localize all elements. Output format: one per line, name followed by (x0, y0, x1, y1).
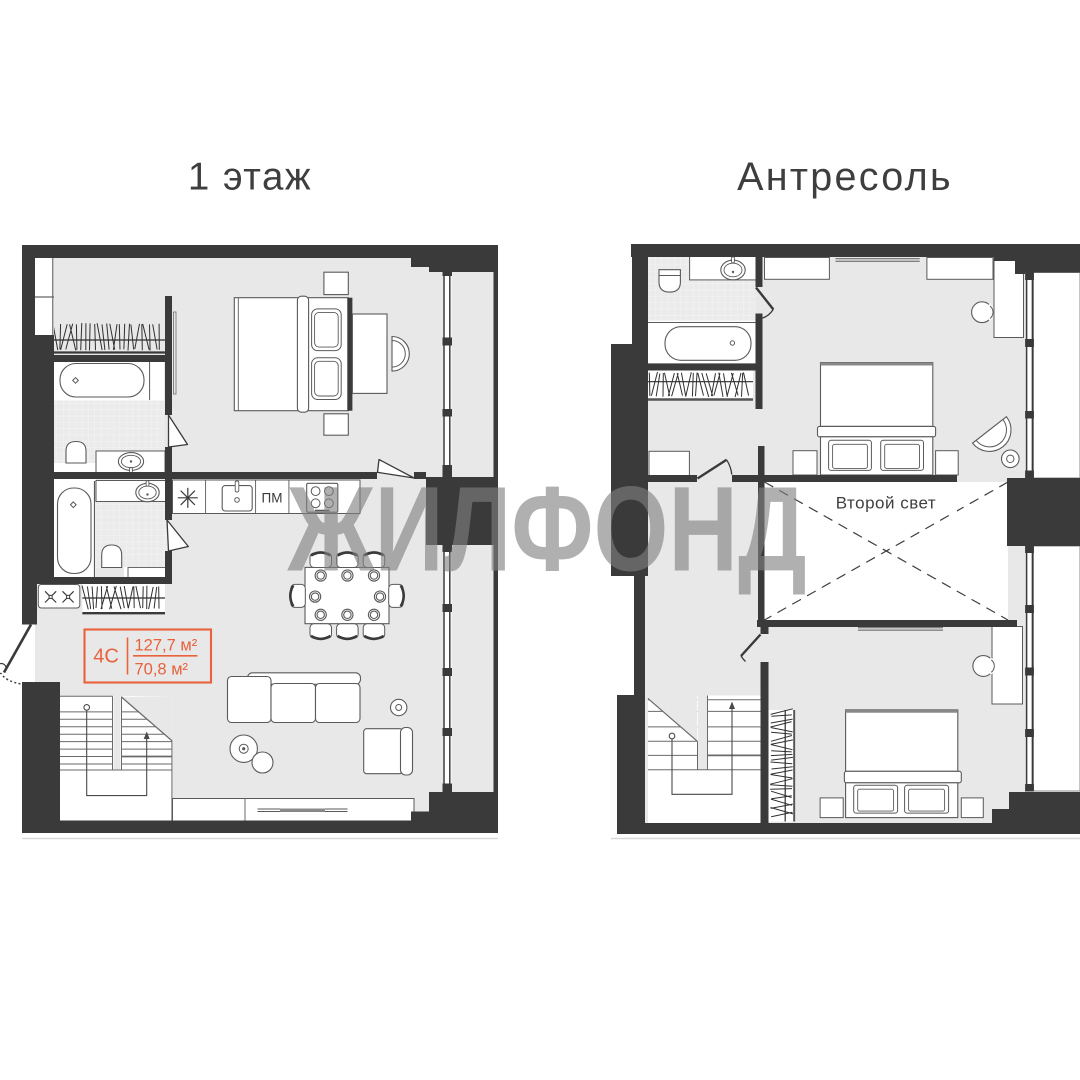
svg-text:4С: 4С (93, 646, 119, 668)
svg-text:70,8 м²: 70,8 м² (135, 661, 189, 679)
svg-text:ПМ: ПМ (262, 490, 283, 505)
svg-text:Антресоль: Антресоль (737, 155, 953, 199)
svg-text:1 этаж: 1 этаж (188, 156, 312, 199)
svg-text:ЖИЛФОНД: ЖИЛФОНД (287, 462, 807, 597)
svg-text:127,7 м²: 127,7 м² (135, 637, 198, 655)
svg-text:Второй свет: Второй свет (836, 494, 936, 513)
